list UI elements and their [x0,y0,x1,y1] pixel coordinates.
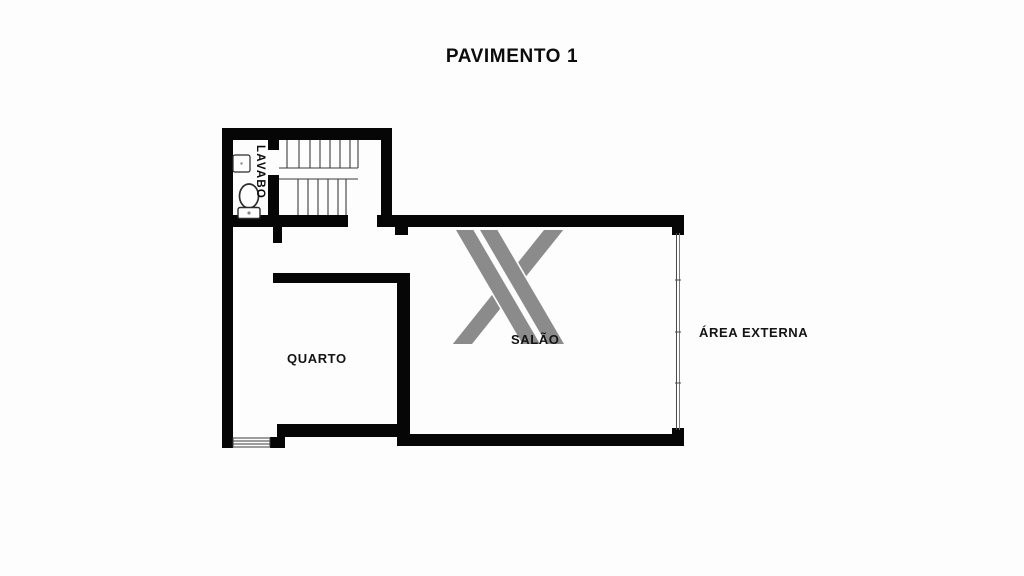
wall-cap-top-right [672,227,684,235]
glass-wall-icon [675,233,681,430]
wall-hall-jamb [273,223,282,243]
wall-left [222,128,233,448]
wall-quarto-top [273,273,397,283]
wall-quarto-bottom [277,424,397,437]
room-label-salao: SALÃO [511,332,560,347]
wall-quarto-salao-divider [397,273,410,446]
wall-salao-bottom [398,434,684,446]
floor-plan-canvas: PAVIMENTO 1 [0,0,1024,576]
walls [222,128,684,448]
room-label-lavabo: LAVABO [254,145,266,199]
wall-lavabo-divider [268,175,279,222]
wall-salao-top [377,215,684,227]
wall-window-jamb [270,437,285,448]
room-label-area-externa: ÁREA EXTERNA [699,325,808,340]
window-icon [233,438,270,447]
stairs-icon [279,140,358,215]
wall-stair-right [381,128,392,227]
floor-plan-drawing [0,0,1024,576]
room-label-quarto: QUARTO [287,351,347,366]
wall-lavabo-door-jamb [268,140,279,150]
wall-top [222,128,392,140]
sink-icon [233,155,250,172]
wall-salao-door-jamb [395,227,408,235]
